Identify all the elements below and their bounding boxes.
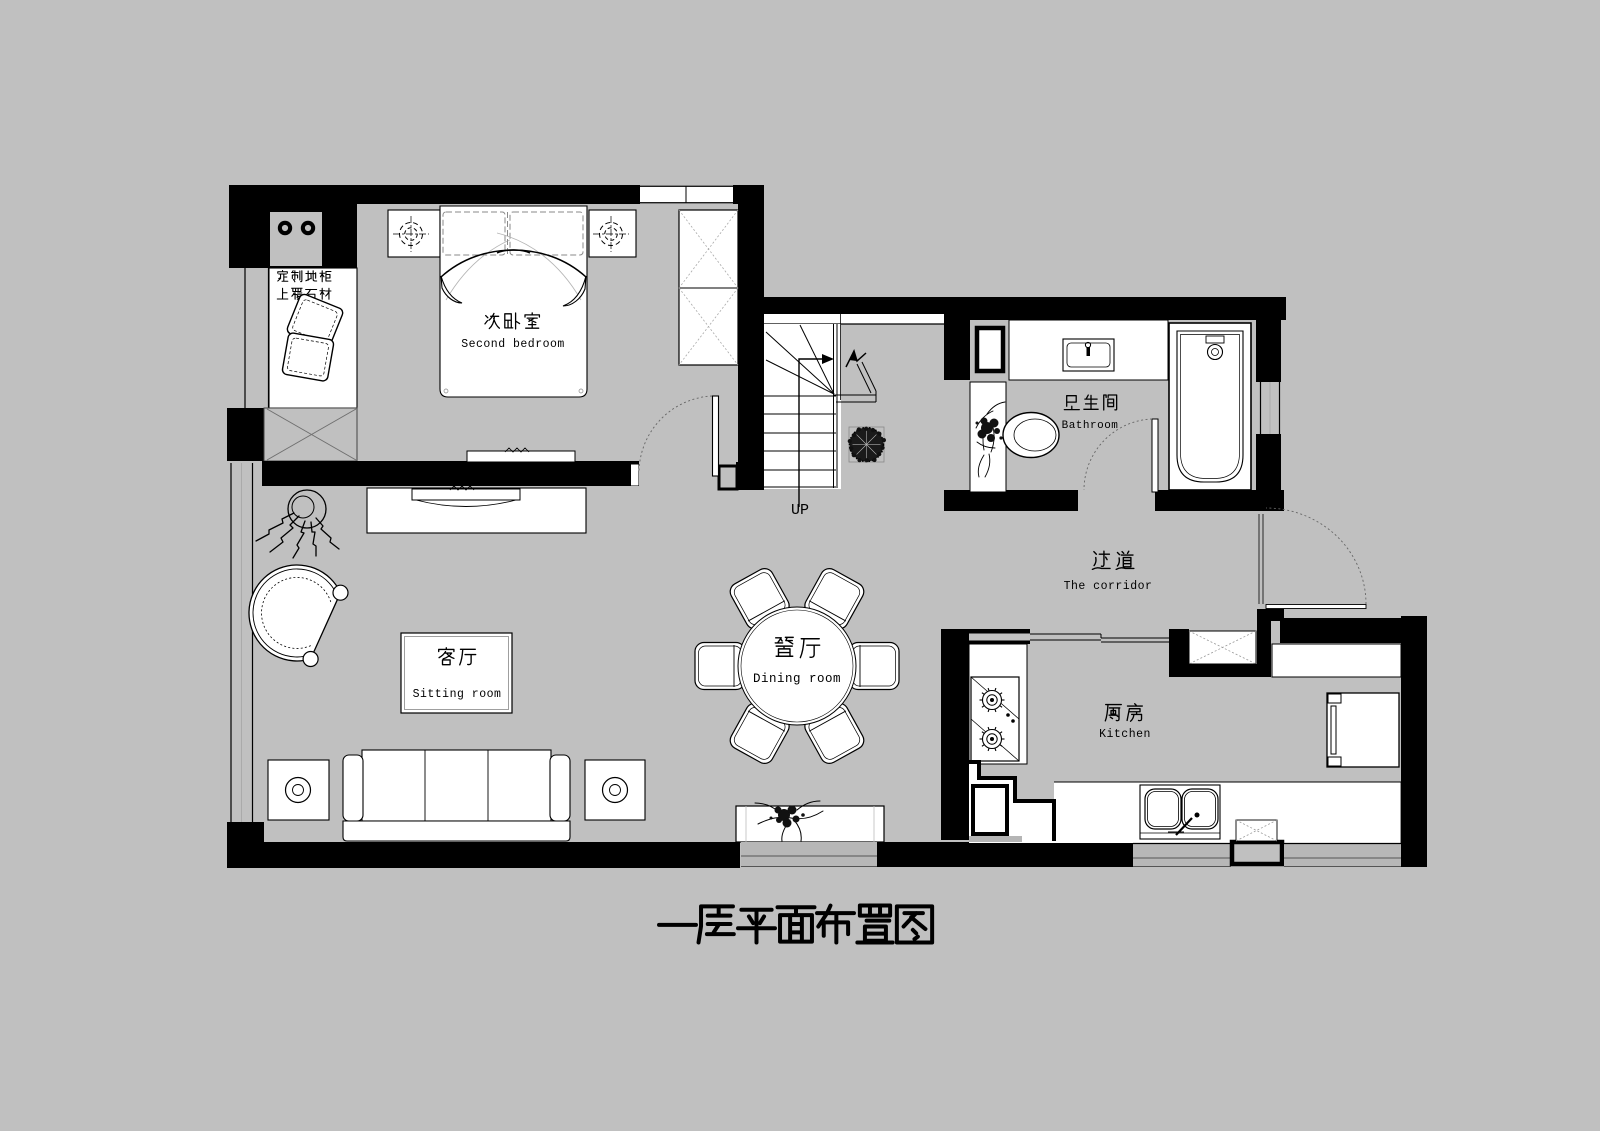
svg-text:Kitchen: Kitchen bbox=[1099, 728, 1151, 741]
svg-text:Bathroom: Bathroom bbox=[1062, 420, 1119, 432]
svg-text:Dining room: Dining room bbox=[753, 672, 841, 686]
svg-text:UP: UP bbox=[791, 502, 809, 519]
svg-text:Second bedroom: Second bedroom bbox=[461, 338, 565, 351]
svg-text:The corridor: The corridor bbox=[1064, 580, 1153, 593]
svg-text:Sitting room: Sitting room bbox=[413, 688, 502, 701]
